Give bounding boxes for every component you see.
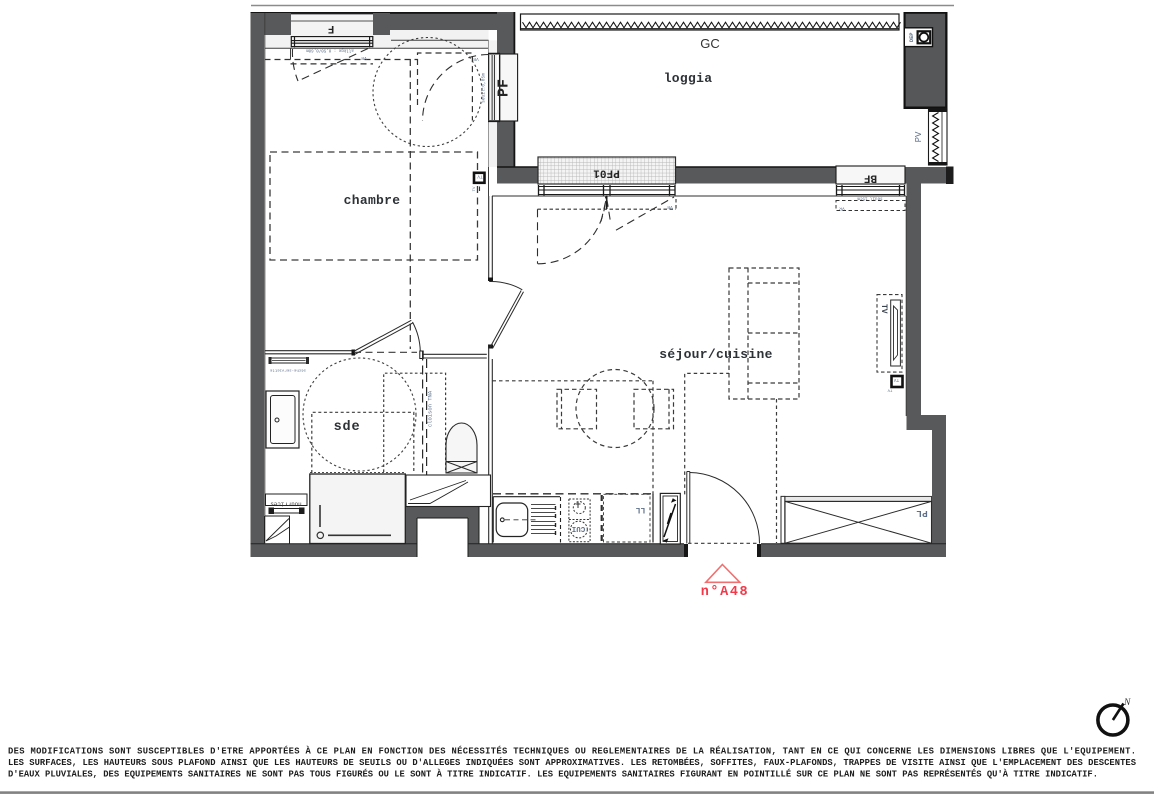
svg-text:sde: sde: [334, 420, 361, 435]
svg-text:TV: TV: [887, 388, 892, 392]
svg-text:TV: TV: [473, 186, 477, 191]
svg-text:PF: PF: [496, 79, 513, 97]
svg-text:loggia: loggia: [664, 71, 713, 86]
svg-text:TV: TV: [879, 304, 888, 314]
svg-text:BF: BF: [864, 172, 877, 184]
svg-text:TV: TV: [894, 377, 900, 383]
svg-text:chambre: chambre: [344, 193, 401, 208]
svg-text:GC: GC: [700, 36, 720, 51]
svg-text:nourrices: nourrices: [270, 501, 301, 508]
svg-text:sèche-serviette: sèche-serviette: [269, 368, 306, 373]
svg-text:VR: VR: [361, 55, 367, 61]
svg-text:cloison TNA: cloison TNA: [427, 390, 434, 427]
svg-text:PF01: PF01: [593, 167, 620, 179]
svg-text:n°A48: n°A48: [701, 585, 750, 600]
svg-text:F: F: [328, 22, 335, 34]
svg-text:VR: VR: [667, 204, 673, 210]
svg-text:VR: VR: [473, 56, 479, 62]
svg-text:DES MODIFICATIONS SONT SUSCEPT: DES MODIFICATIONS SONT SUSCEPTIBLES D'ET…: [8, 746, 1136, 757]
svg-text:LL: LL: [636, 505, 646, 514]
svg-text:CUI: CUI: [572, 524, 586, 532]
svg-text:PL: PL: [916, 508, 928, 519]
svg-text:D'EAUX PLUVIALES, DES EQUIPEME: D'EAUX PLUVIALES, DES EQUIPEMENTS SANITA…: [8, 769, 1098, 780]
svg-text:VR: VR: [839, 206, 845, 212]
svg-text:N: N: [1123, 698, 1131, 708]
svg-text:PV: PV: [914, 131, 924, 142]
svg-text:séjour/cuisine: séjour/cuisine: [659, 347, 772, 362]
svg-text:LES SURFACES, LES HAUTEURS SOU: LES SURFACES, LES HAUTEURS SOUS PLAFOND …: [8, 757, 1136, 768]
svg-text:DEP: DEP: [909, 32, 915, 42]
svg-text:seuil 15cm: seuil 15cm: [857, 196, 883, 201]
svg-text:TV: TV: [477, 174, 483, 180]
